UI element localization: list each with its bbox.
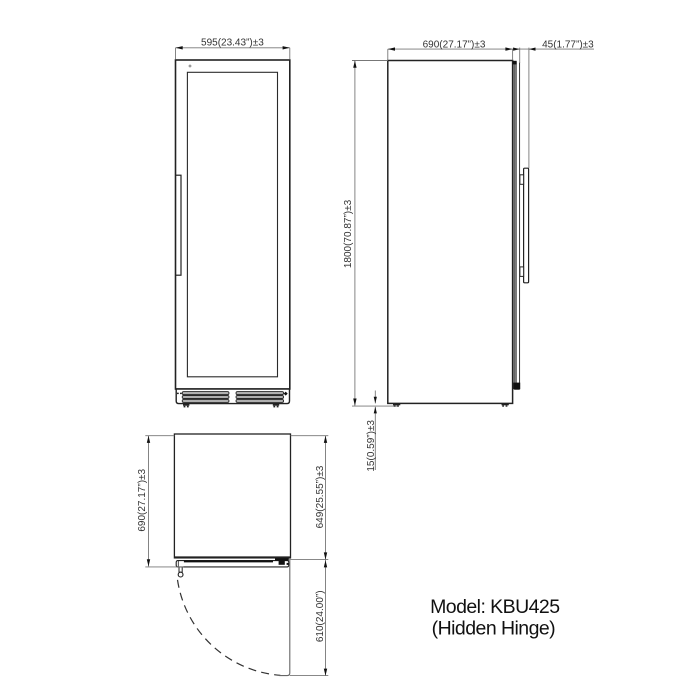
svg-text:45(1.77”)±3: 45(1.77”)±3 [542, 39, 594, 50]
svg-text:(Hidden Hinge): (Hidden Hinge) [432, 618, 556, 640]
svg-text:649(25.55”)±3: 649(25.55”)±3 [315, 465, 326, 528]
svg-text:15(0.59”)±3: 15(0.59”)±3 [366, 420, 377, 472]
svg-text:595(23.43”)±3: 595(23.43”)±3 [201, 37, 264, 48]
svg-text:Model: KBU425: Model: KBU425 [430, 596, 560, 618]
svg-text:690(27.17”)±3: 690(27.17”)±3 [137, 468, 148, 531]
svg-text:690(27.17”)±3: 690(27.17”)±3 [423, 39, 486, 50]
svg-text:1800(70.87”)±3: 1800(70.87”)±3 [343, 199, 354, 268]
svg-text:610(24.00”): 610(24.00”) [315, 590, 326, 642]
